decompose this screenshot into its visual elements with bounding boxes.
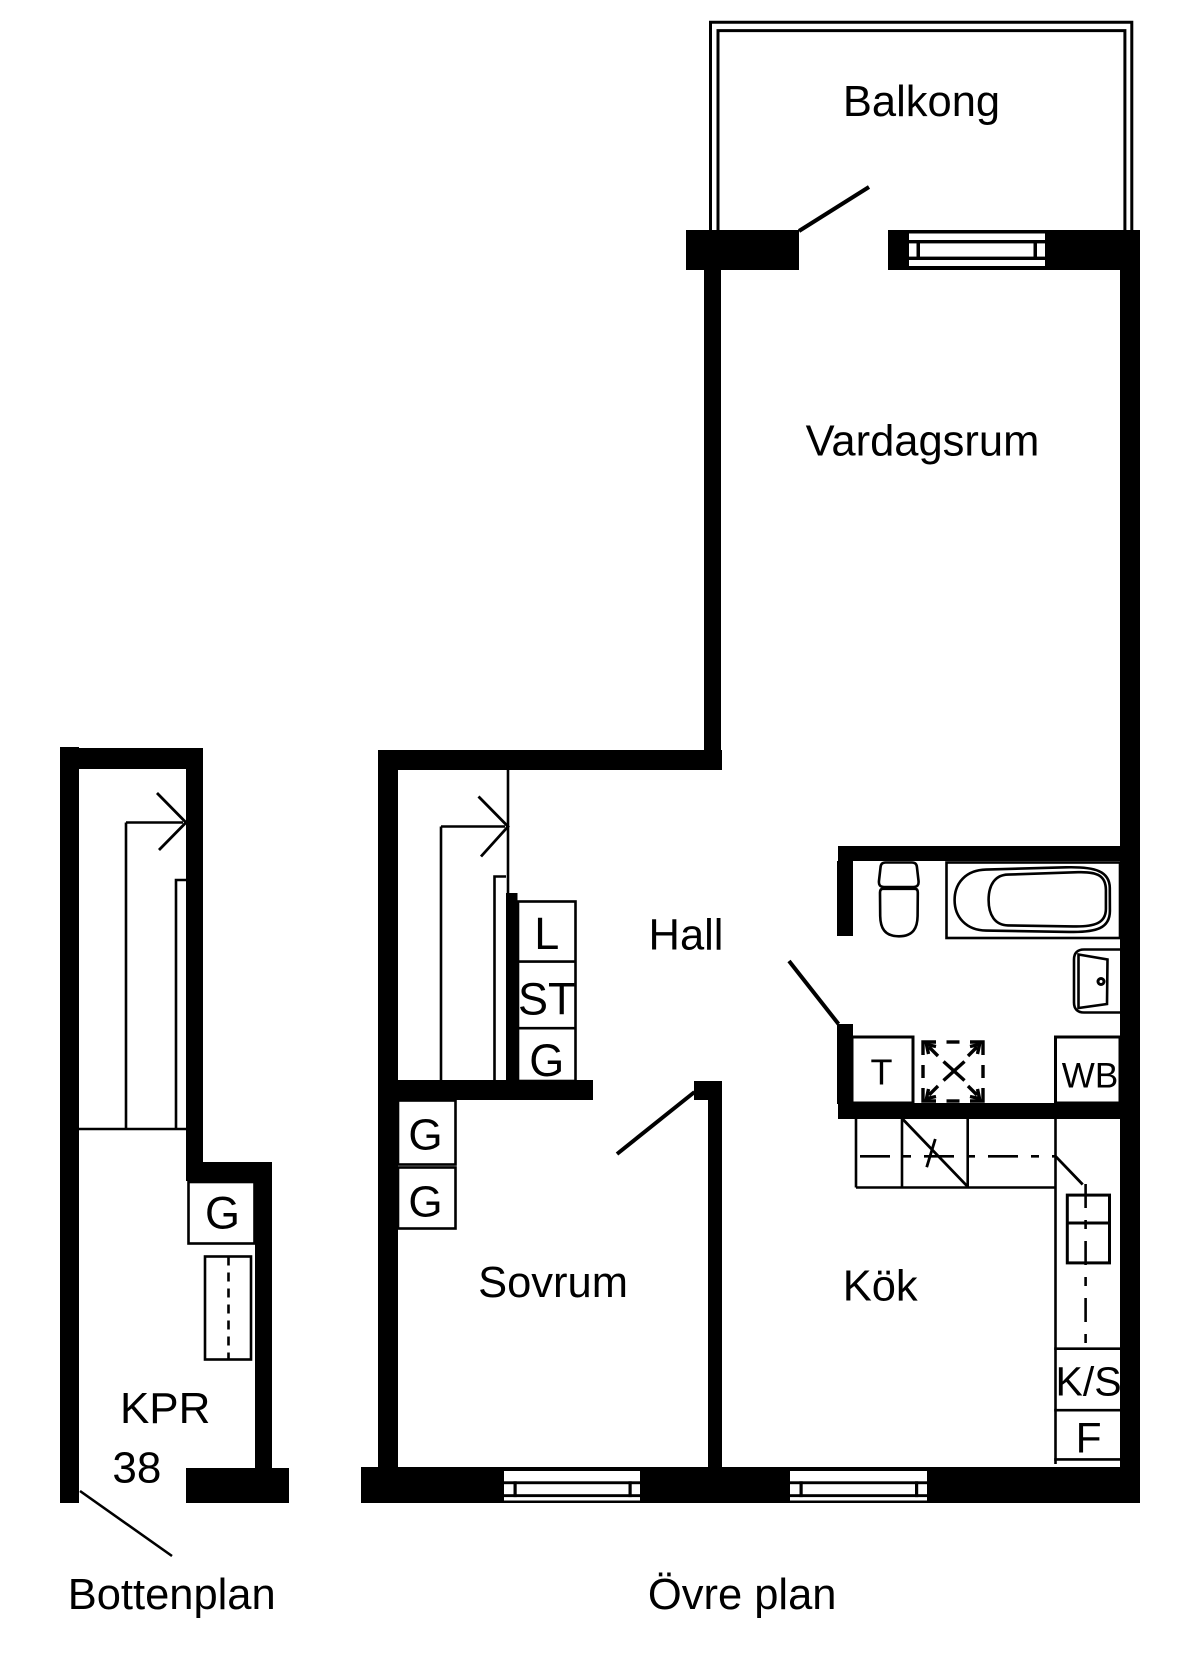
svg-text:G: G [408,1110,442,1159]
svg-text:Sovrum: Sovrum [478,1259,628,1307]
svg-text:T: T [871,1051,893,1092]
svg-text:Bottenplan: Bottenplan [68,1571,276,1619]
svg-text:Vardagsrum: Vardagsrum [806,417,1040,465]
svg-text:G: G [408,1178,442,1227]
svg-text:G: G [205,1188,240,1239]
svg-text:K/S: K/S [1056,1358,1122,1404]
svg-text:Hall: Hall [649,912,724,960]
svg-text:ST: ST [518,974,576,1025]
svg-text:F: F [1076,1416,1102,1463]
svg-text:KPR: KPR [120,1384,210,1433]
svg-text:WB: WB [1062,1056,1118,1095]
svg-text:L: L [534,908,559,959]
svg-text:Balkong: Balkong [843,78,1000,126]
svg-text:38: 38 [112,1444,161,1493]
svg-text:G: G [529,1035,564,1086]
svg-text:Övre plan: Övre plan [648,1571,837,1619]
svg-text:Kök: Kök [843,1263,918,1311]
